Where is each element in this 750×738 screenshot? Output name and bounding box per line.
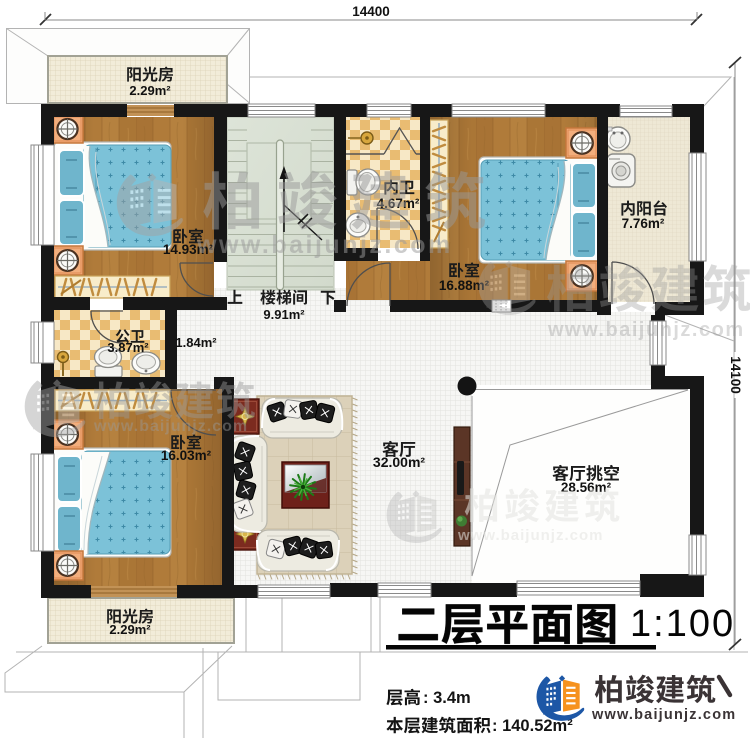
svg-text:7.76m²: 7.76m²: [622, 216, 665, 231]
svg-text:1.84m²: 1.84m²: [175, 335, 217, 350]
svg-text:: 3.4m: : 3.4m: [423, 689, 471, 707]
svg-text:32.00m²: 32.00m²: [373, 454, 425, 470]
svg-text:1:100: 1:100: [630, 603, 735, 645]
svg-text:www.baijunjz.com: www.baijunjz.com: [547, 319, 745, 341]
svg-text:2.29m²: 2.29m²: [109, 622, 151, 637]
svg-text:www.baijunjz.com: www.baijunjz.com: [591, 707, 736, 723]
svg-text:2.29m²: 2.29m²: [129, 83, 171, 98]
svg-text:14400: 14400: [352, 4, 390, 19]
svg-text:3.87m²: 3.87m²: [107, 340, 149, 355]
svg-text:9.91m²: 9.91m²: [263, 307, 305, 322]
svg-text:www.baijunjz.com: www.baijunjz.com: [93, 418, 248, 435]
svg-text:14100: 14100: [728, 356, 743, 394]
svg-text:www.baijunjz.com: www.baijunjz.com: [457, 527, 603, 544]
svg-text:www.baijunjz.com: www.baijunjz.com: [196, 231, 453, 259]
svg-text:16.03m²: 16.03m²: [161, 448, 212, 463]
